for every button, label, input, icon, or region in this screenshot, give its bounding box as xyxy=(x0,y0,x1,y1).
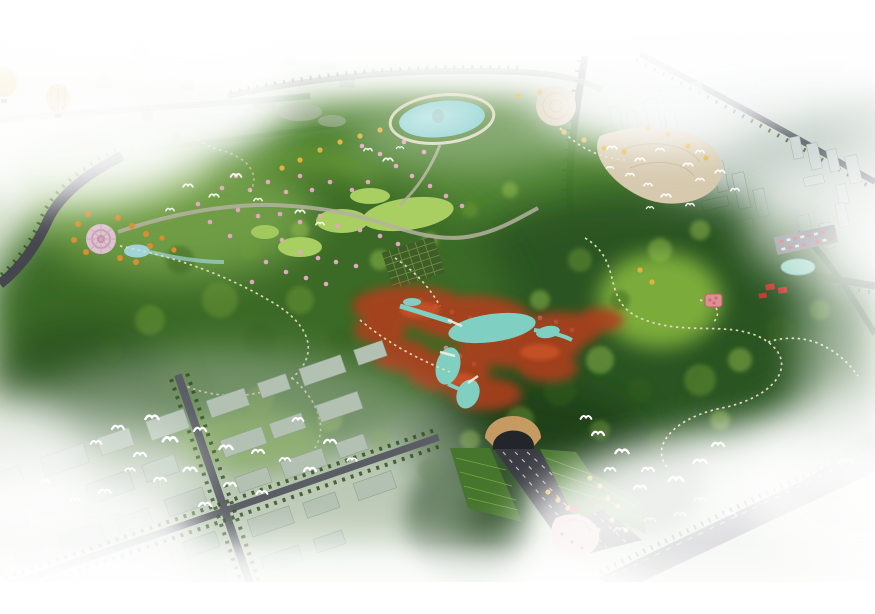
top-margin xyxy=(0,0,875,31)
bottom-margin xyxy=(0,584,875,614)
aerial-masterplan-rendering xyxy=(0,0,875,614)
hilltop-pavilion xyxy=(705,294,722,307)
fade-top xyxy=(0,30,875,94)
fade-right xyxy=(815,30,875,582)
